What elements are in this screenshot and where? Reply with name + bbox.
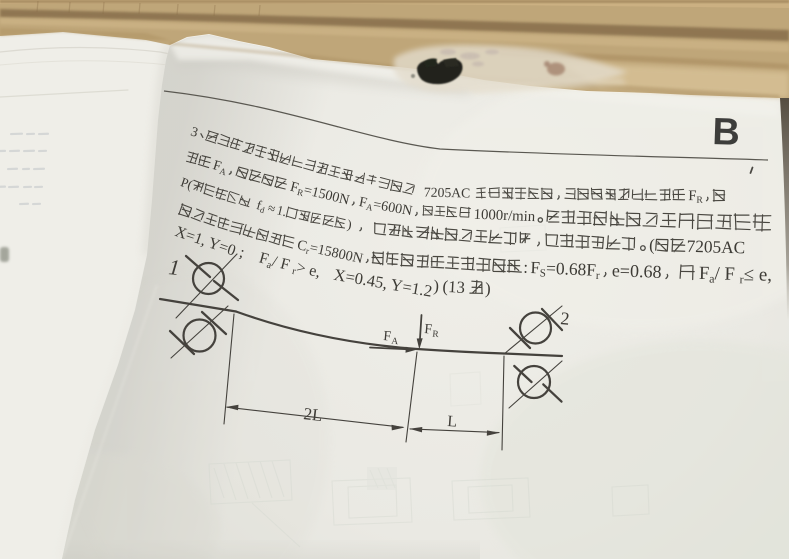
svg-text:2L: 2L xyxy=(303,404,324,425)
svg-text:R: R xyxy=(696,195,703,206)
svg-text:F: F xyxy=(699,263,710,284)
svg-text:2: 2 xyxy=(560,308,571,329)
svg-text:): ) xyxy=(485,279,491,298)
svg-text:1000r/min: 1000r/min xyxy=(473,207,536,225)
svg-text:A: A xyxy=(391,337,399,348)
svg-text:13: 13 xyxy=(448,277,466,297)
svg-text:e=0.68: e=0.68 xyxy=(612,260,662,281)
svg-text:F: F xyxy=(688,188,696,204)
svg-text:/ F: / F xyxy=(714,263,735,284)
svg-text:L: L xyxy=(447,413,458,431)
svg-text:=0.68F: =0.68F xyxy=(546,258,597,280)
svg-text:r: r xyxy=(596,270,600,282)
svg-text:7205AC: 7205AC xyxy=(686,237,745,258)
svg-text:≤ e,: ≤ e, xyxy=(743,264,772,285)
svg-text:7205AC: 7205AC xyxy=(424,185,471,201)
svg-text:(: ( xyxy=(649,235,656,254)
svg-text:B: B xyxy=(712,111,741,154)
svg-text::: : xyxy=(523,258,529,277)
